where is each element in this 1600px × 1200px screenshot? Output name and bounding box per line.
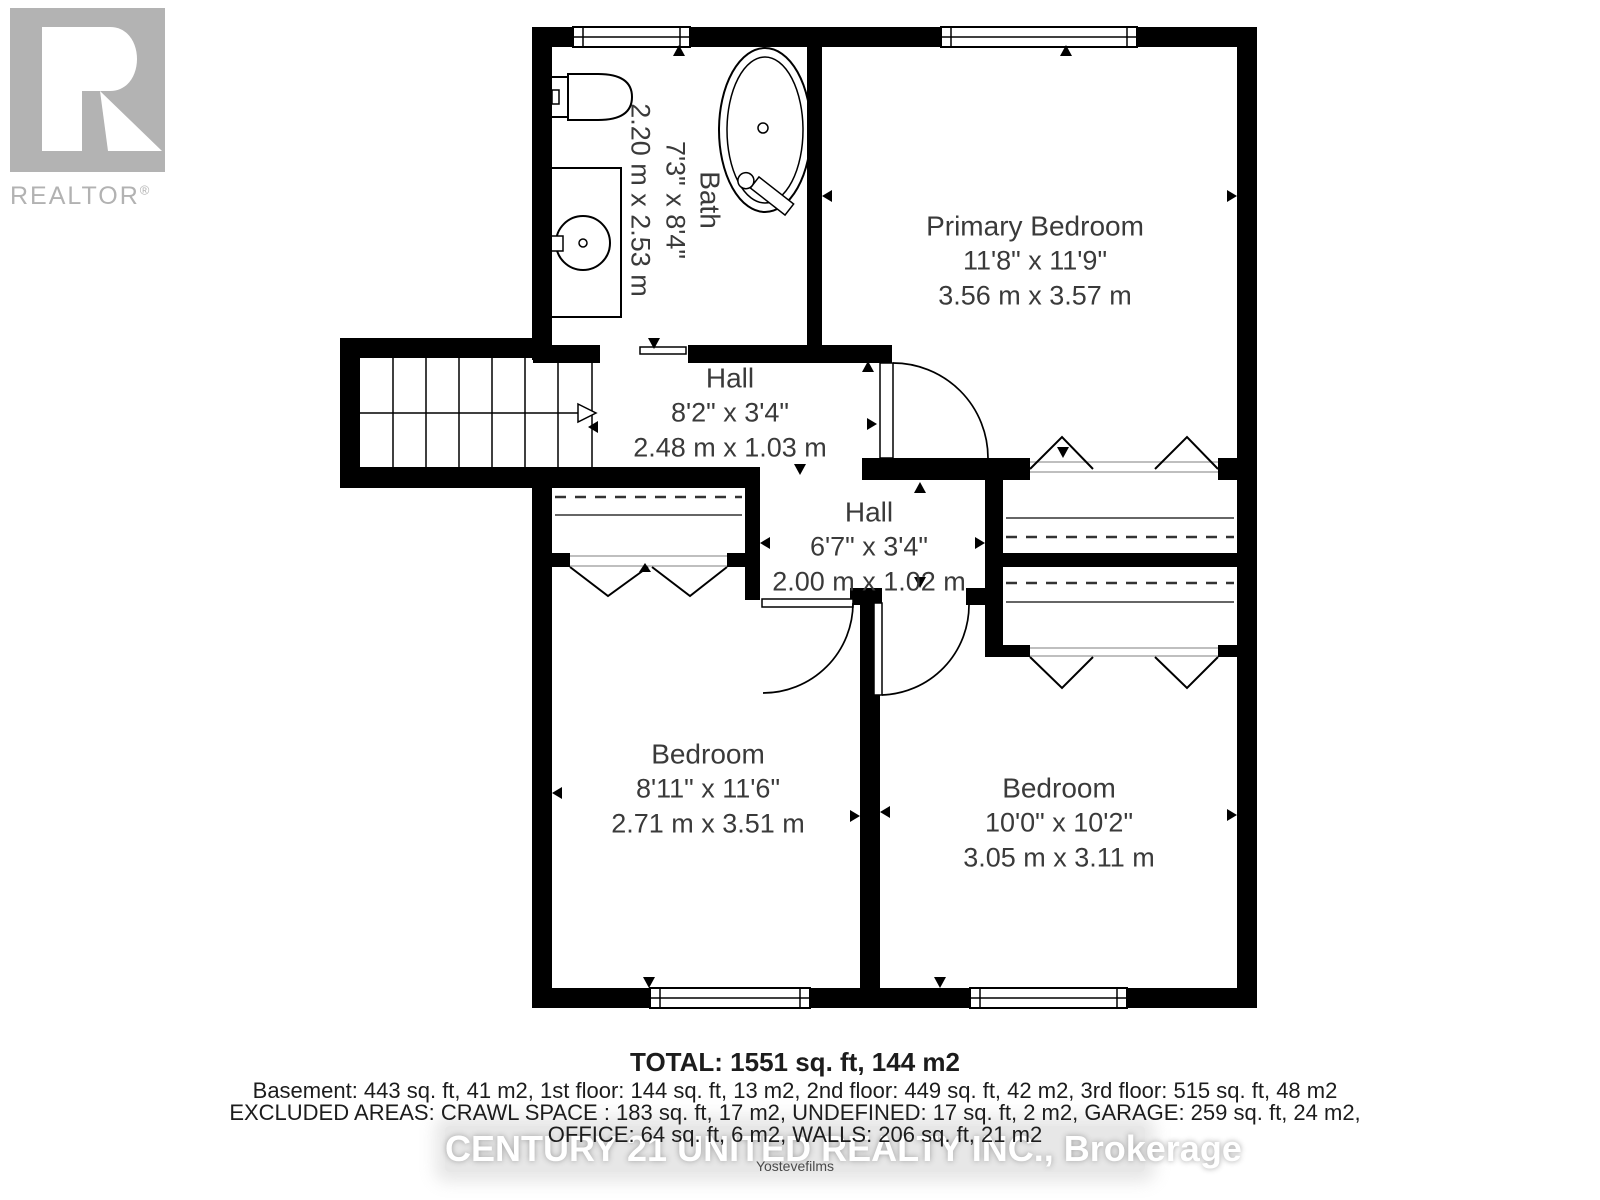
room-label-primary-bedroom: Primary Bedroom 11'8" x 11'9" 3.56 m x 3… xyxy=(926,209,1144,314)
wall-segment xyxy=(1003,553,1237,567)
room-name: Hall xyxy=(772,495,966,530)
door-swing xyxy=(882,605,969,695)
room-name: Bath xyxy=(693,103,728,297)
dimension-arrow-icon xyxy=(1227,190,1237,202)
room-label-bedroom-left: Bedroom 8'11" x 11'6" 2.71 m x 3.51 m xyxy=(611,737,805,842)
room-label-hall-lower: Hall 6'7" x 3'4" 2.00 m x 1.02 m xyxy=(772,495,966,600)
dimension-arrow-icon xyxy=(850,810,860,822)
dimension-arrow-icon xyxy=(880,806,890,818)
toilet-button xyxy=(552,90,559,104)
wall-segment xyxy=(340,338,360,488)
room-name: Primary Bedroom xyxy=(926,209,1144,244)
wall-segment xyxy=(1218,458,1237,480)
window xyxy=(650,988,810,1008)
dimension-arrow-icon xyxy=(934,977,946,988)
wall-segment xyxy=(862,458,1030,480)
room-dim-metric: 3.05 m x 3.11 m xyxy=(963,841,1155,876)
door-swing xyxy=(763,603,853,693)
door-leaf xyxy=(762,599,853,607)
room-dim-metric: 2.20 m x 2.53 m xyxy=(623,103,658,297)
photographer-credit: Yostevefilms xyxy=(0,1158,1590,1174)
room-dim-metric: 2.71 m x 3.51 m xyxy=(611,807,805,842)
room-dim-imperial: 10'0" x 10'2" xyxy=(963,806,1155,841)
room-dim-metric: 2.00 m x 1.02 m xyxy=(772,565,966,600)
wall-segment xyxy=(727,553,745,567)
bathtub-icon xyxy=(719,48,811,219)
toilet-icon xyxy=(548,74,632,120)
excluded-areas-text-line2: OFFICE: 64 sq. ft, 6 m2, WALLS: 206 sq. … xyxy=(0,1122,1590,1148)
bifold-door xyxy=(1155,437,1218,469)
dimension-arrow-icon xyxy=(639,563,651,572)
window xyxy=(573,27,690,47)
bifold-door xyxy=(652,567,727,596)
stair-direction-arrow-icon xyxy=(578,404,596,422)
room-dim-metric: 2.48 m x 1.03 m xyxy=(633,431,827,466)
dimension-arrow-icon xyxy=(867,418,877,430)
room-name: Hall xyxy=(633,361,827,396)
room-label-bath: Bath 7'3" x 8'4" 2.20 m x 2.53 m xyxy=(623,103,728,297)
wall-segment xyxy=(985,645,1030,657)
door-leaf xyxy=(880,363,893,458)
room-dim-metric: 3.56 m x 3.57 m xyxy=(926,279,1144,314)
dimension-arrow-icon xyxy=(588,421,598,433)
dimension-arrow-icon xyxy=(1227,809,1237,821)
wall-segment xyxy=(532,468,552,1008)
sink-drain xyxy=(579,239,587,247)
wall-segment xyxy=(552,553,570,567)
bifold-door xyxy=(1030,657,1093,688)
wall-segment xyxy=(985,458,1003,657)
dimension-arrow-icon xyxy=(552,787,562,799)
bifold-door xyxy=(570,567,648,596)
dimension-arrow-icon xyxy=(822,190,832,202)
dimension-arrow-icon xyxy=(1057,447,1069,458)
door-leaf xyxy=(640,347,686,354)
dimension-arrow-icon xyxy=(760,537,770,549)
room-dim-imperial: 8'2" x 3'4" xyxy=(633,396,827,431)
bathtub-drain xyxy=(758,123,768,133)
room-name: Bedroom xyxy=(611,737,805,772)
room-label-hall-upper: Hall 8'2" x 3'4" 2.48 m x 1.03 m xyxy=(633,361,827,466)
window xyxy=(970,988,1127,1008)
room-label-bedroom-right: Bedroom 10'0" x 10'2" 3.05 m x 3.11 m xyxy=(963,771,1155,876)
wall-segment xyxy=(1237,27,1257,1008)
door-swing xyxy=(893,363,988,458)
staircase xyxy=(360,358,596,468)
room-dim-imperial: 11'8" x 11'9" xyxy=(926,244,1144,279)
floor-plan xyxy=(0,0,1600,1200)
dimension-arrow-icon xyxy=(914,482,926,493)
room-dim-imperial: 7'3" x 8'4" xyxy=(658,103,693,297)
room-name: Bedroom xyxy=(963,771,1155,806)
wall-segment xyxy=(966,588,1003,605)
room-dim-imperial: 8'11" x 11'6" xyxy=(611,772,805,807)
bifold-door xyxy=(1155,657,1218,688)
wall-segment xyxy=(1218,645,1237,657)
dimension-arrow-icon xyxy=(794,464,806,475)
wall-segment xyxy=(532,988,1257,1008)
total-area-text: TOTAL: 1551 sq. ft, 144 m2 xyxy=(0,1047,1590,1078)
dimension-arrow-icon xyxy=(643,977,655,988)
window xyxy=(941,27,1137,47)
floor-plan-page: REALTOR® xyxy=(0,0,1600,1200)
vanity-sink-icon xyxy=(548,168,621,317)
wall-segment xyxy=(340,338,552,358)
room-dim-imperial: 6'7" x 3'4" xyxy=(772,530,966,565)
wall-segment xyxy=(533,345,600,363)
door-leaf xyxy=(874,603,882,695)
wall-segment xyxy=(745,467,760,600)
dimension-arrow-icon xyxy=(975,537,985,549)
